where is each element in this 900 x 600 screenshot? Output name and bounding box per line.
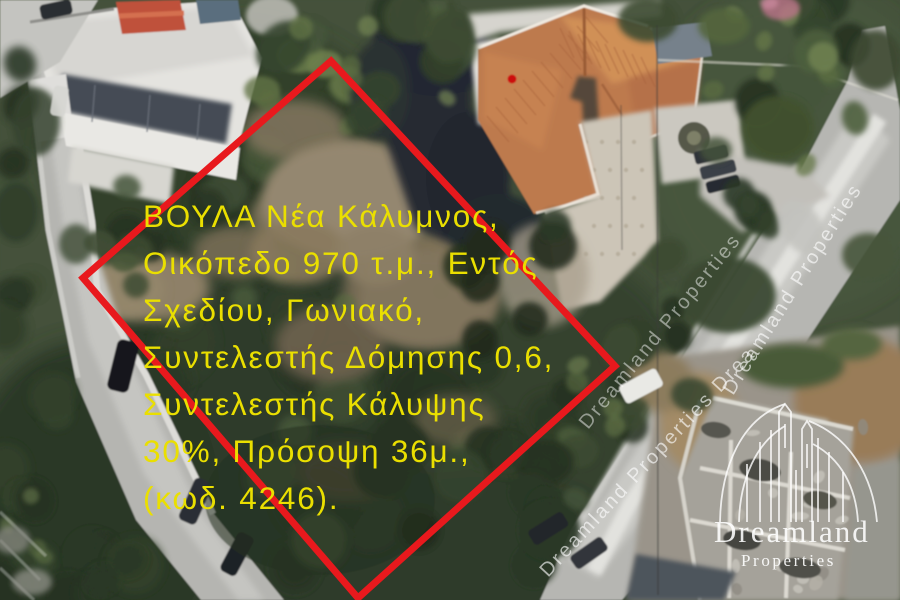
- svg-text:Properties: Properties: [741, 551, 836, 570]
- svg-text:Σχεδίου, Γωνιακό,: Σχεδίου, Γωνιακό,: [143, 292, 425, 328]
- svg-text:Οικόπεδο 970 τ.μ., Εντός: Οικόπεδο 970 τ.μ., Εντός: [143, 245, 539, 281]
- svg-text:(κωδ. 4246).: (κωδ. 4246).: [143, 480, 339, 516]
- svg-text:Dreamland: Dreamland: [714, 514, 870, 549]
- svg-text:Συντελεστής Δόμησης 0,6,: Συντελεστής Δόμησης 0,6,: [143, 339, 554, 375]
- svg-text:ΒΟΥΛΑ Νέα Κάλυμνος,: ΒΟΥΛΑ Νέα Κάλυμνος,: [143, 198, 500, 234]
- svg-text:30%, Πρόσοψη 36μ.,: 30%, Πρόσοψη 36μ.,: [143, 433, 471, 469]
- svg-text:Συντελεστής Κάλυψης: Συντελεστής Κάλυψης: [143, 386, 485, 422]
